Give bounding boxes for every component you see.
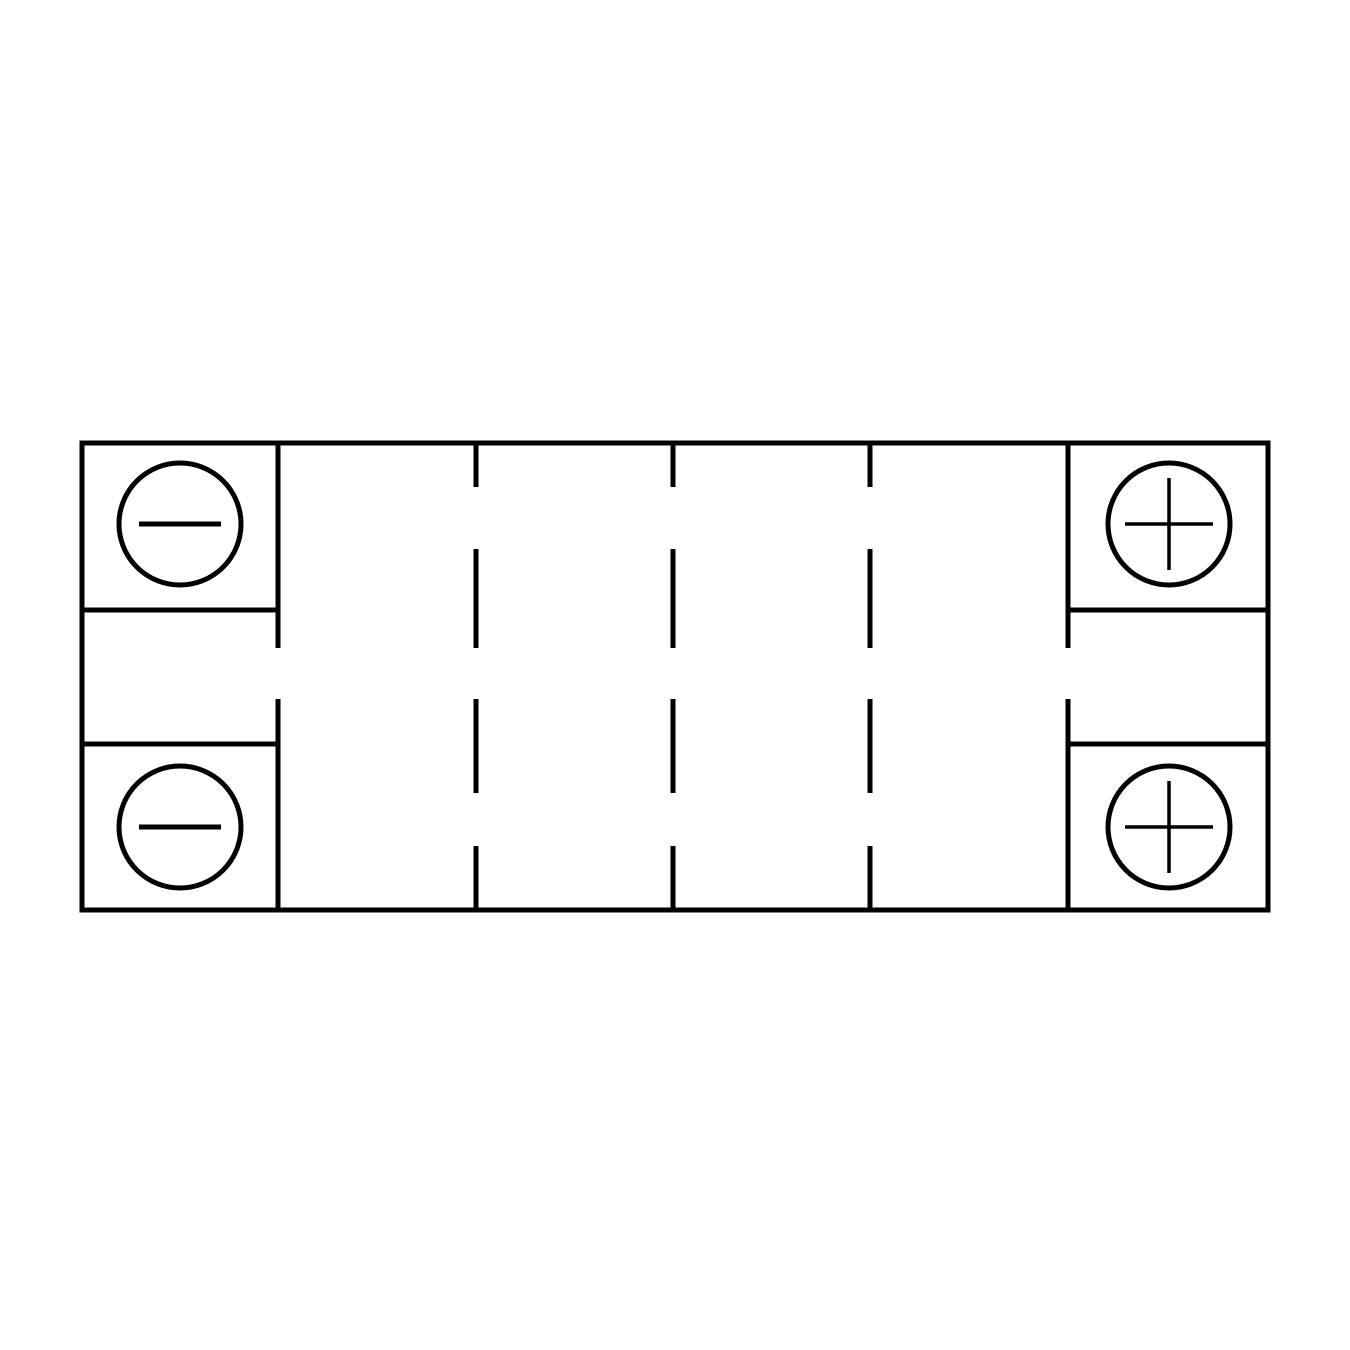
terminal-top-right-positive: + xyxy=(1068,443,1268,610)
terminal-bottom-right-positive: + xyxy=(1068,744,1268,910)
terminal-top-left-negative: − xyxy=(82,443,278,610)
battery-drawing: − − + xyxy=(82,443,1268,910)
plus-symbol-icon xyxy=(1125,478,1213,570)
page-canvas: − − + xyxy=(0,0,1350,1350)
terminal-bottom-left-negative: − xyxy=(82,744,278,910)
battery-top-view-diagram: − − + xyxy=(0,0,1350,1350)
plus-symbol-icon xyxy=(1125,781,1213,873)
battery-body-outline xyxy=(82,443,1268,910)
